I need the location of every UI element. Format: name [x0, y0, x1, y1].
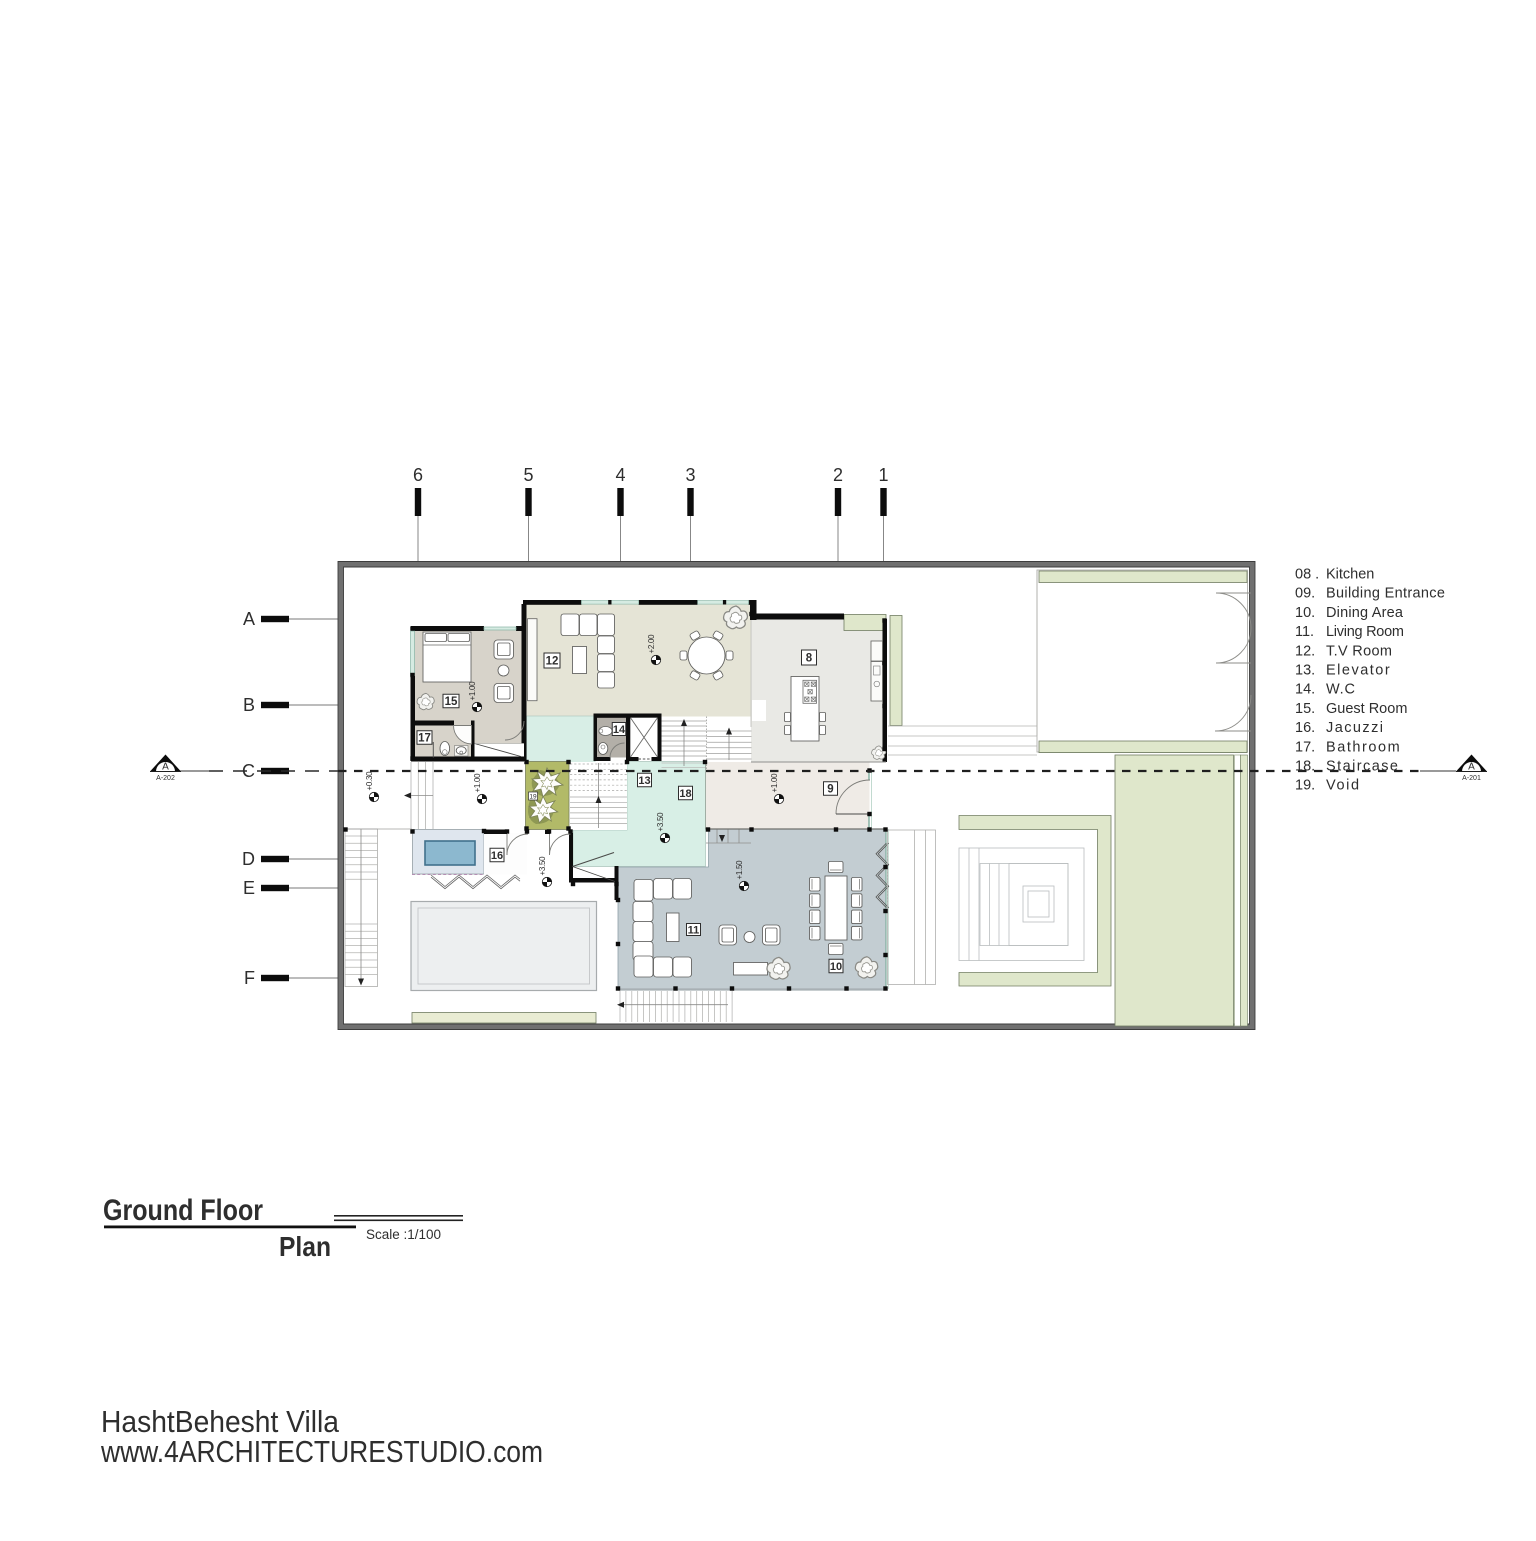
svg-text:+1.00: +1.00: [770, 773, 779, 793]
svg-text:D: D: [242, 849, 255, 869]
svg-text:17: 17: [418, 733, 431, 745]
svg-text:8: 8: [806, 653, 813, 665]
svg-text:F: F: [244, 968, 255, 988]
svg-text:+3.50: +3.50: [656, 812, 665, 832]
svg-text:+0.30: +0.30: [365, 771, 374, 791]
svg-text:12: 12: [546, 656, 559, 668]
svg-text:Elevator: Elevator: [1326, 663, 1391, 679]
svg-text:E: E: [243, 878, 255, 898]
svg-text:18: 18: [679, 788, 691, 800]
svg-text:17.: 17.: [1295, 739, 1315, 755]
svg-text:Scale :1/100: Scale :1/100: [366, 1227, 441, 1242]
svg-text:+1.00: +1.00: [473, 773, 482, 793]
svg-text:12.: 12.: [1295, 643, 1315, 659]
svg-text:+3.50: +3.50: [538, 856, 547, 876]
svg-text:HashtBehesht Villa: HashtBehesht Villa: [101, 1405, 339, 1439]
svg-text:2: 2: [833, 465, 843, 485]
svg-text:Staircase: Staircase: [1326, 759, 1399, 775]
svg-text:3: 3: [685, 465, 695, 485]
svg-text:14: 14: [613, 724, 626, 736]
svg-text:19: 19: [529, 794, 537, 801]
svg-text:13: 13: [638, 775, 650, 787]
svg-text:18.: 18.: [1295, 759, 1315, 775]
svg-text:Building Entrance: Building Entrance: [1326, 586, 1445, 602]
svg-text:11: 11: [688, 924, 700, 936]
svg-text:9: 9: [827, 784, 833, 796]
svg-text:09.: 09.: [1295, 586, 1315, 602]
svg-text:A: A: [1468, 762, 1475, 773]
svg-text:6: 6: [413, 465, 423, 485]
svg-text:14.: 14.: [1295, 682, 1315, 698]
svg-text:19.: 19.: [1295, 778, 1315, 794]
svg-text:4: 4: [615, 465, 625, 485]
svg-text:+1.00: +1.00: [468, 681, 477, 701]
svg-text:15: 15: [445, 696, 458, 708]
svg-text:A-201: A-201: [1462, 775, 1481, 782]
svg-text:Jacuzzi: Jacuzzi: [1326, 720, 1384, 736]
svg-text:Guest Room: Guest Room: [1326, 701, 1407, 717]
svg-text:5: 5: [523, 465, 533, 485]
svg-text:www.4ARCHITECTURESTUDIO.com: www.4ARCHITECTURESTUDIO.com: [100, 1435, 543, 1469]
svg-text:Plan: Plan: [279, 1231, 331, 1262]
svg-text:Dining Area: Dining Area: [1326, 605, 1404, 621]
svg-text:16.: 16.: [1295, 720, 1315, 736]
svg-text:10: 10: [830, 961, 842, 973]
svg-text:1: 1: [878, 465, 888, 485]
svg-text:A: A: [162, 762, 169, 773]
svg-text:16: 16: [491, 850, 503, 862]
svg-text:A-202: A-202: [156, 775, 175, 782]
svg-text:Void: Void: [1326, 778, 1361, 794]
svg-text:B: B: [243, 695, 255, 715]
svg-text:Living Room: Living Room: [1326, 624, 1404, 640]
svg-text:11.: 11.: [1295, 624, 1314, 640]
svg-text:Bathroom: Bathroom: [1326, 739, 1401, 755]
svg-text:T.V Room: T.V Room: [1326, 643, 1392, 659]
svg-text:Ground Floor: Ground Floor: [103, 1194, 263, 1227]
svg-text:+1.50: +1.50: [735, 860, 744, 880]
svg-text:Kitchen: Kitchen: [1326, 567, 1374, 583]
svg-text:10.: 10.: [1295, 605, 1315, 621]
svg-text:W.C: W.C: [1326, 682, 1356, 698]
svg-text:A: A: [243, 609, 255, 629]
svg-text:+2.00: +2.00: [647, 634, 656, 654]
svg-text:08 .: 08 .: [1295, 567, 1319, 583]
svg-text:15.: 15.: [1295, 701, 1315, 717]
svg-text:13.: 13.: [1295, 663, 1315, 679]
